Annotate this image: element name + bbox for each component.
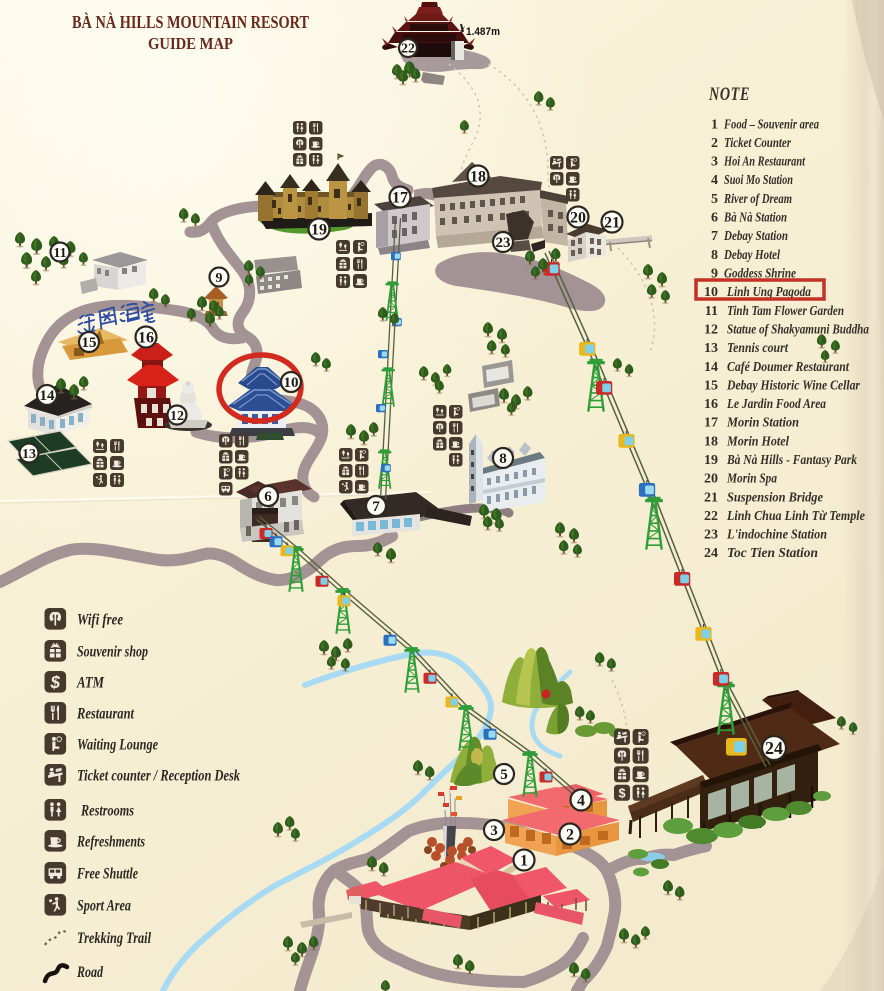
svg-text:6: 6 bbox=[264, 489, 272, 505]
svg-text:15: 15 bbox=[82, 335, 97, 351]
svg-text:Ticket counter / Reception Des: Ticket counter / Reception Desk bbox=[77, 768, 240, 785]
svg-text:Toc Tien Station: Toc Tien Station bbox=[727, 546, 818, 561]
svg-text:Ticket Counter: Ticket Counter bbox=[724, 136, 791, 151]
svg-text:1: 1 bbox=[711, 117, 718, 132]
svg-text:NOTE: NOTE bbox=[708, 84, 750, 105]
svg-text:19: 19 bbox=[704, 453, 718, 468]
svg-text:21: 21 bbox=[604, 215, 620, 232]
svg-text:Refreshments: Refreshments bbox=[76, 834, 145, 851]
svg-text:3: 3 bbox=[490, 823, 498, 839]
svg-text:3: 3 bbox=[711, 155, 718, 170]
svg-text:1.487m: 1.487m bbox=[466, 26, 500, 38]
svg-text:Tennis court: Tennis court bbox=[727, 341, 789, 356]
svg-text:4: 4 bbox=[711, 173, 718, 188]
svg-text:20: 20 bbox=[570, 210, 586, 227]
svg-text:Morin Hotel: Morin Hotel bbox=[726, 434, 789, 449]
svg-text:L'indochine Station: L'indochine Station bbox=[726, 528, 827, 543]
svg-text:16: 16 bbox=[704, 397, 718, 412]
svg-text:Food – Souvenir area: Food – Souvenir area bbox=[723, 117, 819, 132]
svg-text:Le Jardin Food Area: Le Jardin Food Area bbox=[726, 397, 826, 412]
svg-text:Wifi free: Wifi free bbox=[77, 612, 123, 629]
svg-text:12: 12 bbox=[170, 409, 184, 424]
svg-text:Bà Nà Station: Bà Nà Station bbox=[723, 211, 787, 226]
svg-text:Debay Hotel: Debay Hotel bbox=[723, 248, 780, 263]
svg-text:Waiting Lounge: Waiting Lounge bbox=[77, 737, 158, 754]
svg-text:Debay Historic Wine Cellar: Debay Historic Wine Cellar bbox=[726, 378, 860, 393]
svg-text:Hoi An Restaurant: Hoi An Restaurant bbox=[723, 155, 806, 170]
svg-text:23: 23 bbox=[496, 235, 511, 251]
svg-text:GUIDE MAP: GUIDE MAP bbox=[148, 34, 233, 53]
svg-text:9: 9 bbox=[216, 271, 223, 286]
svg-text:Souvenir shop: Souvenir shop bbox=[77, 644, 148, 661]
svg-text:5: 5 bbox=[500, 767, 508, 783]
svg-text:24: 24 bbox=[765, 738, 783, 758]
svg-text:Sport Area: Sport Area bbox=[77, 898, 131, 915]
svg-text:8: 8 bbox=[499, 451, 507, 467]
svg-text:Tinh Tam Flower Garden: Tinh Tam Flower Garden bbox=[727, 304, 844, 319]
svg-text:Restaurant: Restaurant bbox=[76, 706, 134, 723]
svg-text:1: 1 bbox=[520, 853, 528, 870]
svg-text:20: 20 bbox=[704, 472, 718, 487]
svg-text:17: 17 bbox=[392, 190, 408, 207]
svg-text:16: 16 bbox=[138, 330, 154, 347]
svg-text:19: 19 bbox=[311, 222, 327, 239]
svg-text:8: 8 bbox=[711, 248, 718, 263]
svg-text:4: 4 bbox=[577, 793, 585, 810]
svg-text:2: 2 bbox=[711, 136, 718, 151]
svg-text:River of Dream: River of Dream bbox=[723, 192, 792, 207]
svg-text:11: 11 bbox=[53, 246, 66, 261]
svg-text:Statue of Shakyamuni Buddha: Statue of Shakyamuni Buddha bbox=[727, 322, 869, 337]
svg-text:13: 13 bbox=[704, 341, 718, 356]
svg-text:2: 2 bbox=[566, 827, 574, 844]
svg-text:15: 15 bbox=[704, 378, 718, 393]
svg-text:Café Doumer Restaurant: Café Doumer Restaurant bbox=[727, 360, 850, 375]
svg-text:21: 21 bbox=[704, 490, 718, 505]
svg-text:Road: Road bbox=[76, 964, 103, 981]
svg-text:Suoi Mo Station: Suoi Mo Station bbox=[724, 173, 793, 188]
svg-text:22: 22 bbox=[704, 509, 718, 524]
svg-text:22: 22 bbox=[401, 42, 415, 57]
svg-text:12: 12 bbox=[704, 322, 718, 337]
svg-text:14: 14 bbox=[704, 360, 718, 375]
svg-text:ATM: ATM bbox=[76, 675, 104, 692]
svg-text:11: 11 bbox=[705, 304, 718, 319]
svg-text:18: 18 bbox=[470, 169, 486, 186]
svg-text:6: 6 bbox=[711, 211, 718, 226]
svg-text:7: 7 bbox=[711, 229, 718, 244]
svg-text:Restrooms: Restrooms bbox=[80, 803, 134, 820]
svg-text:Morin Station: Morin Station bbox=[726, 416, 799, 431]
svg-text:Linh Chua Linh Từ Temple: Linh Chua Linh Từ Temple bbox=[726, 509, 865, 524]
svg-text:BÀ NÀ HILLS MOUNTAIN RESORT: BÀ NÀ HILLS MOUNTAIN RESORT bbox=[72, 12, 309, 32]
svg-text:17: 17 bbox=[704, 416, 718, 431]
svg-text:5: 5 bbox=[711, 192, 718, 207]
svg-text:23: 23 bbox=[704, 528, 718, 543]
svg-text:Free Shuttle: Free Shuttle bbox=[76, 866, 138, 883]
svg-text:Debay Station: Debay Station bbox=[723, 229, 788, 244]
svg-text:24: 24 bbox=[704, 546, 718, 561]
svg-text:18: 18 bbox=[704, 434, 718, 449]
svg-text:Trekking Trail: Trekking Trail bbox=[77, 930, 151, 947]
svg-text:7: 7 bbox=[372, 499, 380, 515]
svg-text:Bà Nà Hills - Fantasy Park: Bà Nà Hills - Fantasy Park bbox=[726, 453, 857, 468]
svg-text:13: 13 bbox=[22, 447, 36, 462]
svg-text:Morin Spa: Morin Spa bbox=[726, 472, 777, 487]
svg-text:Suspension Bridge: Suspension Bridge bbox=[727, 490, 823, 505]
svg-text:10: 10 bbox=[284, 375, 299, 391]
svg-text:14: 14 bbox=[40, 388, 56, 404]
